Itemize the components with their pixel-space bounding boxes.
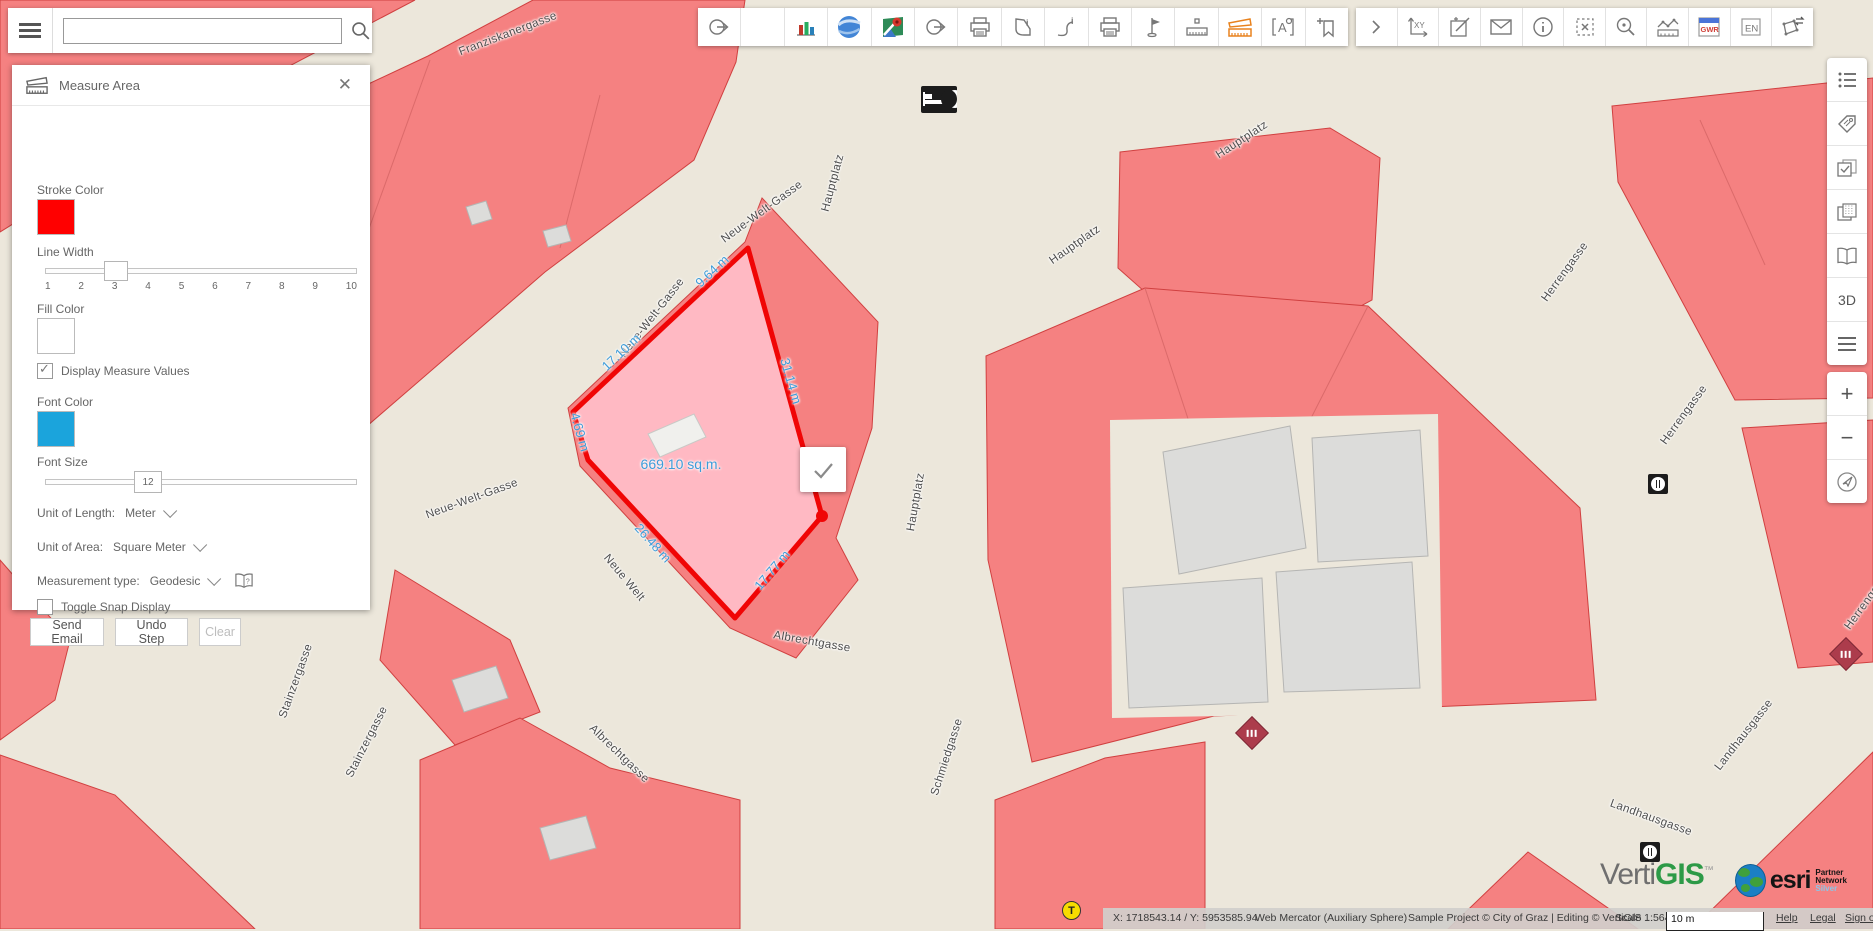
search-toolbar: [8, 8, 372, 53]
gwr-icon: GWR: [1696, 15, 1722, 39]
font-color-swatch[interactable]: [37, 411, 75, 447]
measure-area-icon: [1226, 15, 1254, 39]
secondary-toolbar: XY: [1356, 8, 1813, 46]
printer-icon: [968, 15, 992, 39]
font-color-label: Font Color: [37, 395, 93, 409]
profile-chart-button[interactable]: [1647, 8, 1689, 46]
svg-text:XY: XY: [1414, 21, 1425, 30]
main-toolbar: i i A: [698, 8, 1348, 46]
clear-selection-button[interactable]: [1564, 8, 1606, 46]
unit-of-length-select[interactable]: Meter: [125, 506, 173, 520]
print-button[interactable]: [958, 8, 1001, 46]
select-features-icon: [1835, 157, 1859, 179]
toggle-snap-row[interactable]: Toggle Snap Display: [37, 599, 170, 615]
font-size-handle[interactable]: 12: [134, 471, 162, 493]
unit-of-area-row: Unit of Area: Square Meter: [37, 540, 203, 554]
font-size-label: Font Size: [37, 455, 88, 469]
scale-label: Scale 1:564: [1615, 912, 1670, 924]
edit-pencil-icon: [1448, 15, 1472, 39]
add-bookmark-button[interactable]: [1306, 8, 1348, 46]
identify-area-button[interactable]: i: [1002, 8, 1045, 46]
circle-arrow-icon: [924, 15, 948, 39]
line-width-handle[interactable]: [104, 261, 128, 281]
zoom-in-button[interactable]: +: [1827, 372, 1867, 416]
magnifier-dot-icon: [1614, 15, 1638, 39]
close-icon[interactable]: ✕: [332, 73, 358, 97]
measure-area-panel: Measure Area ✕ Stroke Color Line Width 1…: [12, 65, 370, 610]
elevation-profile-icon: [1655, 15, 1681, 39]
map-tools-toolbar: 3D: [1827, 58, 1867, 365]
legal-link[interactable]: Legal: [1810, 912, 1836, 924]
cursor-coordinates: X: 1718543.14 / Y: 5953585.94: [1113, 912, 1258, 924]
toggle-snap-label: Toggle Snap Display: [61, 600, 170, 614]
svg-text:EN: EN: [1745, 24, 1758, 35]
google-earth-button[interactable]: [828, 8, 871, 46]
info-button[interactable]: [1523, 8, 1565, 46]
measurement-value-label: 669.10 sq.m.: [641, 456, 722, 472]
tick-label: 3: [112, 281, 118, 292]
panel-title: Measure Area: [59, 78, 332, 93]
polygon-swap-icon: [1780, 15, 1806, 39]
fill-color-label: Fill Color: [37, 302, 84, 316]
toggle-3d-button[interactable]: 3D: [1827, 278, 1867, 322]
tick-label: 5: [179, 281, 185, 292]
museum-icon: [1240, 721, 1264, 745]
measurement-type-row: Measurement type: Geodesic ?: [37, 572, 255, 590]
museum-icon: [1834, 642, 1858, 666]
hotel-icon: [921, 86, 957, 113]
measure-area-icon: [24, 74, 50, 96]
app: { "search": { "value": "" }, "toolbar": …: [0, 0, 1873, 929]
print-map-button[interactable]: [1089, 8, 1132, 46]
share-button[interactable]: [915, 8, 958, 46]
empty-slot[interactable]: [741, 8, 784, 46]
zoom-to-button[interactable]: [1606, 8, 1648, 46]
chevron-down-icon: [163, 504, 177, 518]
edit-sketch-button[interactable]: [1439, 8, 1481, 46]
stroke-color-label: Stroke Color: [37, 183, 104, 197]
menu-lines-icon: [1836, 335, 1858, 353]
clear-button[interactable]: Clear: [199, 618, 241, 646]
info-icon: [1531, 15, 1555, 39]
ruler-icon: [1184, 15, 1210, 39]
measure-distance-button[interactable]: [1175, 8, 1218, 46]
help-link[interactable]: Help: [1776, 912, 1798, 924]
search-input[interactable]: [63, 18, 343, 44]
expand-toolbar-button[interactable]: [1356, 8, 1398, 46]
measure-vertex: [816, 510, 828, 522]
tick-label: 6: [212, 281, 218, 292]
tick-label: 1: [45, 281, 51, 292]
layers-icon: [1835, 201, 1859, 223]
svg-text:?: ?: [246, 577, 250, 586]
unit-of-length-row: Unit of Length: Meter: [37, 506, 173, 520]
search-icon[interactable]: [350, 20, 372, 42]
sign-out-link[interactable]: Sign out: [1845, 912, 1873, 924]
locate-me-button[interactable]: [1827, 460, 1867, 503]
select-features-button[interactable]: [1827, 146, 1867, 190]
esri-globe-icon: [1735, 864, 1766, 897]
bookmark-plus-icon: [1315, 15, 1339, 39]
open-book-icon: [1835, 246, 1859, 266]
email-button[interactable]: [1481, 8, 1523, 46]
results-list-icon: [1836, 70, 1858, 90]
scale-bar-label: 10 m: [1671, 913, 1694, 925]
help-book-icon[interactable]: ?: [233, 572, 255, 590]
printer-icon: [1098, 15, 1122, 39]
results-list-button[interactable]: [1827, 58, 1867, 102]
svg-text:i: i: [1026, 18, 1029, 28]
unit-of-length-label: Unit of Length:: [37, 506, 115, 520]
zoom-toolbar: + −: [1827, 372, 1867, 503]
esri-logo: esri Partner Network Silver: [1735, 864, 1873, 897]
tick-label: 2: [78, 281, 84, 292]
undo-step-button[interactable]: Undo Step: [115, 618, 188, 646]
chevron-down-icon: [207, 572, 221, 586]
display-measure-values-row[interactable]: Display Measure Values: [37, 363, 190, 379]
tick-label: 7: [246, 281, 252, 292]
envelope-icon: [1488, 16, 1514, 38]
tick-label: 10: [346, 281, 357, 292]
tick-label: 8: [279, 281, 285, 292]
legend-button[interactable]: [1827, 322, 1867, 365]
clear-selection-icon: [1573, 15, 1597, 39]
tick-label: 4: [145, 281, 151, 292]
locate-icon: [1835, 470, 1859, 494]
polygon-info-icon: i: [1011, 15, 1035, 39]
labels-button[interactable]: [1827, 102, 1867, 146]
display-measure-values-checkbox[interactable]: [37, 363, 53, 379]
svg-text:i: i: [1071, 16, 1074, 26]
svg-text:A: A: [1278, 20, 1287, 35]
language-en-icon: EN: [1739, 15, 1763, 39]
scale-bar: 10 m: [1666, 912, 1764, 931]
svg-text:GWR: GWR: [1701, 25, 1720, 34]
chart-tool-button[interactable]: [785, 8, 828, 46]
line-width-ticks: 12345678910: [45, 281, 357, 292]
vertigis-logo: VertiGIS™: [1600, 858, 1713, 892]
send-email-button[interactable]: Send Email: [30, 618, 104, 646]
language-button[interactable]: EN: [1731, 8, 1773, 46]
projection-label: Web Mercator (Auxiliary Sphere): [1255, 912, 1407, 924]
hamburger-icon: [19, 20, 41, 41]
fill-color-swatch[interactable]: [37, 318, 75, 354]
chevron-down-icon: [193, 538, 207, 552]
tag-icon: [1836, 113, 1858, 135]
flag-tool-button[interactable]: [1132, 8, 1175, 46]
measurement-type-select[interactable]: Geodesic: [150, 574, 218, 588]
globe-icon: [836, 14, 862, 40]
check-icon: [811, 458, 835, 482]
layers-button[interactable]: [1827, 190, 1867, 234]
google-maps-button[interactable]: [872, 8, 915, 46]
toggle-snap-checkbox[interactable]: [37, 599, 53, 615]
transit-stop-icon: T: [1062, 901, 1081, 920]
flag-icon: [1142, 15, 1164, 39]
map-pin-icon: [880, 14, 906, 40]
export-button[interactable]: [698, 8, 741, 46]
stroke-color-swatch[interactable]: [37, 199, 75, 235]
exchange-geometry-button[interactable]: [1772, 8, 1813, 46]
measurement-type-label: Measurement type:: [37, 574, 140, 588]
line-width-label: Line Width: [37, 245, 94, 259]
panel-header: Measure Area ✕: [12, 65, 370, 106]
circle-arrow-icon: [707, 15, 731, 39]
bookmarks-button[interactable]: [1827, 234, 1867, 278]
display-measure-values-label: Display Measure Values: [61, 364, 190, 378]
tick-label: 9: [312, 281, 318, 292]
zoom-out-button[interactable]: −: [1827, 416, 1867, 460]
text-annotation-icon: A: [1270, 15, 1296, 39]
measure-area-button[interactable]: [1219, 8, 1262, 46]
add-text-button[interactable]: A: [1262, 8, 1305, 46]
chevron-right-icon: [1367, 18, 1385, 36]
confirm-measure-button[interactable]: [800, 447, 846, 492]
unit-of-area-label: Unit of Area:: [37, 540, 103, 554]
gwr-button[interactable]: GWR: [1689, 8, 1731, 46]
menu-button[interactable]: [8, 8, 53, 53]
identify-line-button[interactable]: i: [1045, 8, 1088, 46]
bar-chart-icon: [794, 15, 818, 39]
xy-coordinates-button[interactable]: XY: [1398, 8, 1440, 46]
line-info-icon: i: [1054, 15, 1078, 39]
font-size-slider[interactable]: 12: [45, 479, 357, 485]
poi-icon: [1648, 474, 1668, 494]
unit-of-area-select[interactable]: Square Meter: [113, 540, 203, 554]
xy-axes-icon: XY: [1405, 15, 1431, 39]
line-width-slider[interactable]: [45, 268, 357, 274]
status-bar: X: 1718543.14 / Y: 5953585.94 Web Mercat…: [1103, 908, 1873, 929]
